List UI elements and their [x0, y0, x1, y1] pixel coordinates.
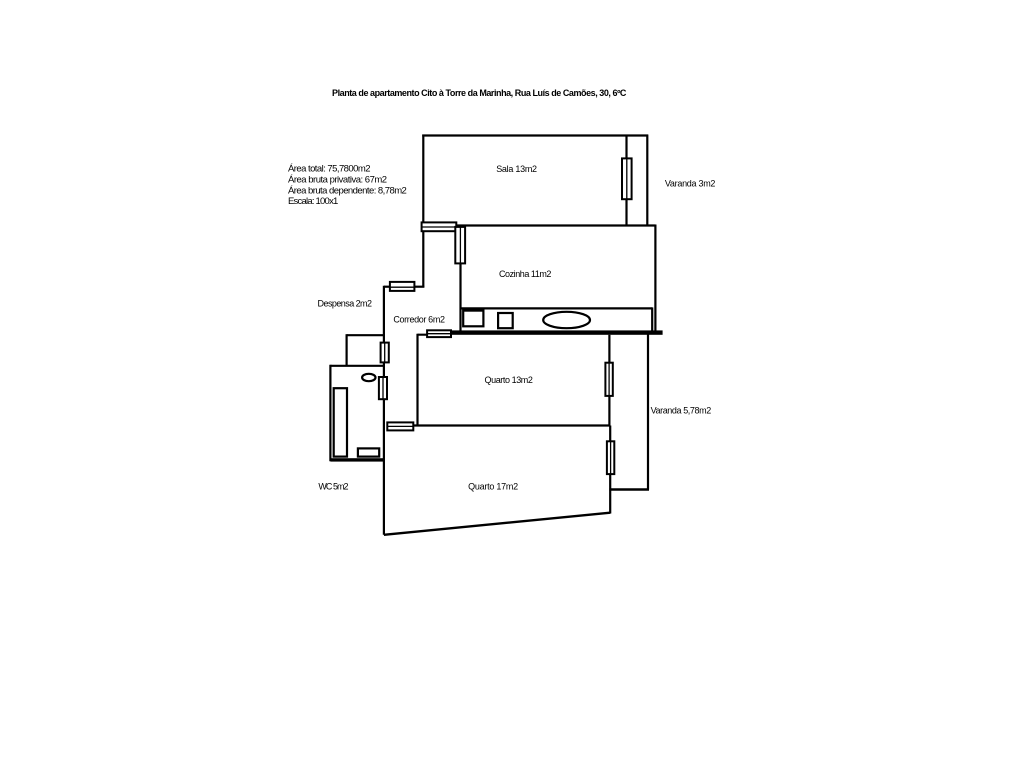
svg-text:Escala: 100x1: Escala: 100x1 [288, 196, 338, 207]
svg-text:Planta de apartamento Cito à T: Planta de apartamento Cito à Torre da Ma… [332, 88, 627, 98]
svg-text:Quarto 17m2: Quarto 17m2 [468, 481, 518, 491]
svg-text:Despensa 2m2: Despensa 2m2 [318, 299, 372, 309]
svg-text:Sala 13m2: Sala 13m2 [496, 164, 537, 174]
svg-text:Varanda 5,78m2: Varanda 5,78m2 [651, 405, 712, 415]
svg-text:Varanda 3m2: Varanda 3m2 [665, 179, 716, 189]
svg-text:Área bruta dependente: 8,78m2: Área bruta dependente: 8,78m2 [288, 185, 407, 196]
svg-text:Quarto 13m2: Quarto 13m2 [485, 375, 533, 385]
svg-text:Área bruta privativa: 67m2: Área bruta privativa: 67m2 [288, 174, 387, 185]
svg-text:Área total: 75,7800m2: Área total: 75,7800m2 [288, 163, 370, 174]
svg-text:Cozinha 11m2: Cozinha 11m2 [499, 269, 551, 279]
svg-text:WC 5m2: WC 5m2 [318, 481, 348, 491]
svg-text:Corredor 6m2: Corredor 6m2 [393, 315, 445, 325]
